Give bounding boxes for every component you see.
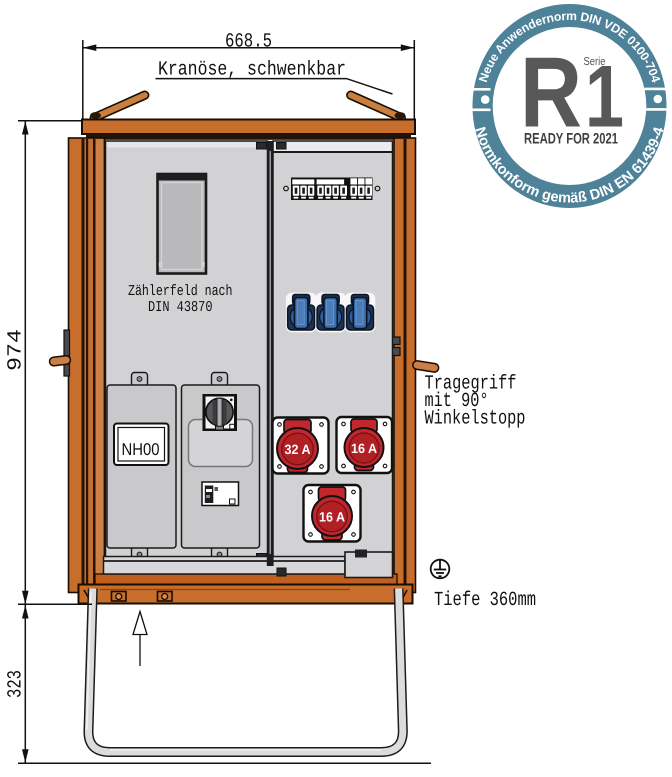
svg-text:16 A: 16 A [319,510,345,525]
svg-text:READY FOR 2021: READY FOR 2021 [524,131,618,148]
svg-text:16 A: 16 A [351,441,377,456]
svg-text:DIN 43870: DIN 43870 [148,299,213,316]
svg-text:NH00: NH00 [122,440,160,459]
svg-text:323: 323 [5,670,28,698]
svg-text:Serie: Serie [584,56,606,68]
svg-text:668.5: 668.5 [225,31,272,54]
svg-text:Winkelstopp: Winkelstopp [425,408,526,431]
svg-text:Zählerfeld nach: Zählerfeld nach [128,283,233,300]
svg-text:Tiefe 360mm: Tiefe 360mm [434,589,536,612]
svg-text:32 A: 32 A [285,442,311,457]
svg-text:974: 974 [5,329,28,371]
